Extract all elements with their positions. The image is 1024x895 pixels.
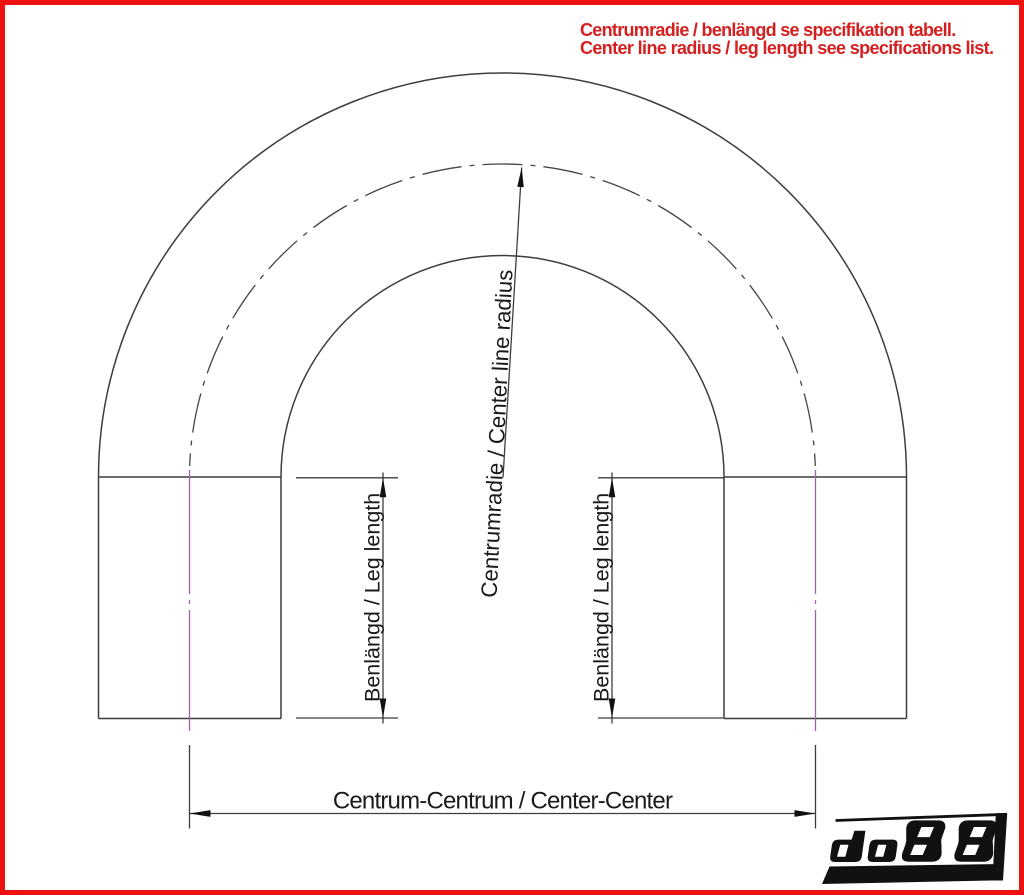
svg-text:Centrum-Centrum / Center-Cente: Centrum-Centrum / Center-Center xyxy=(333,788,673,815)
svg-text:Center line radius / leg lengt: Center line radius / leg length see spec… xyxy=(580,38,993,58)
svg-text:Centrumradie / benlängd se spe: Centrumradie / benlängd se specifikation… xyxy=(580,20,956,40)
svg-text:Benlängd / Leg length: Benlängd / Leg length xyxy=(590,493,614,702)
svg-text:Benlängd / Leg length: Benlängd / Leg length xyxy=(361,493,385,702)
